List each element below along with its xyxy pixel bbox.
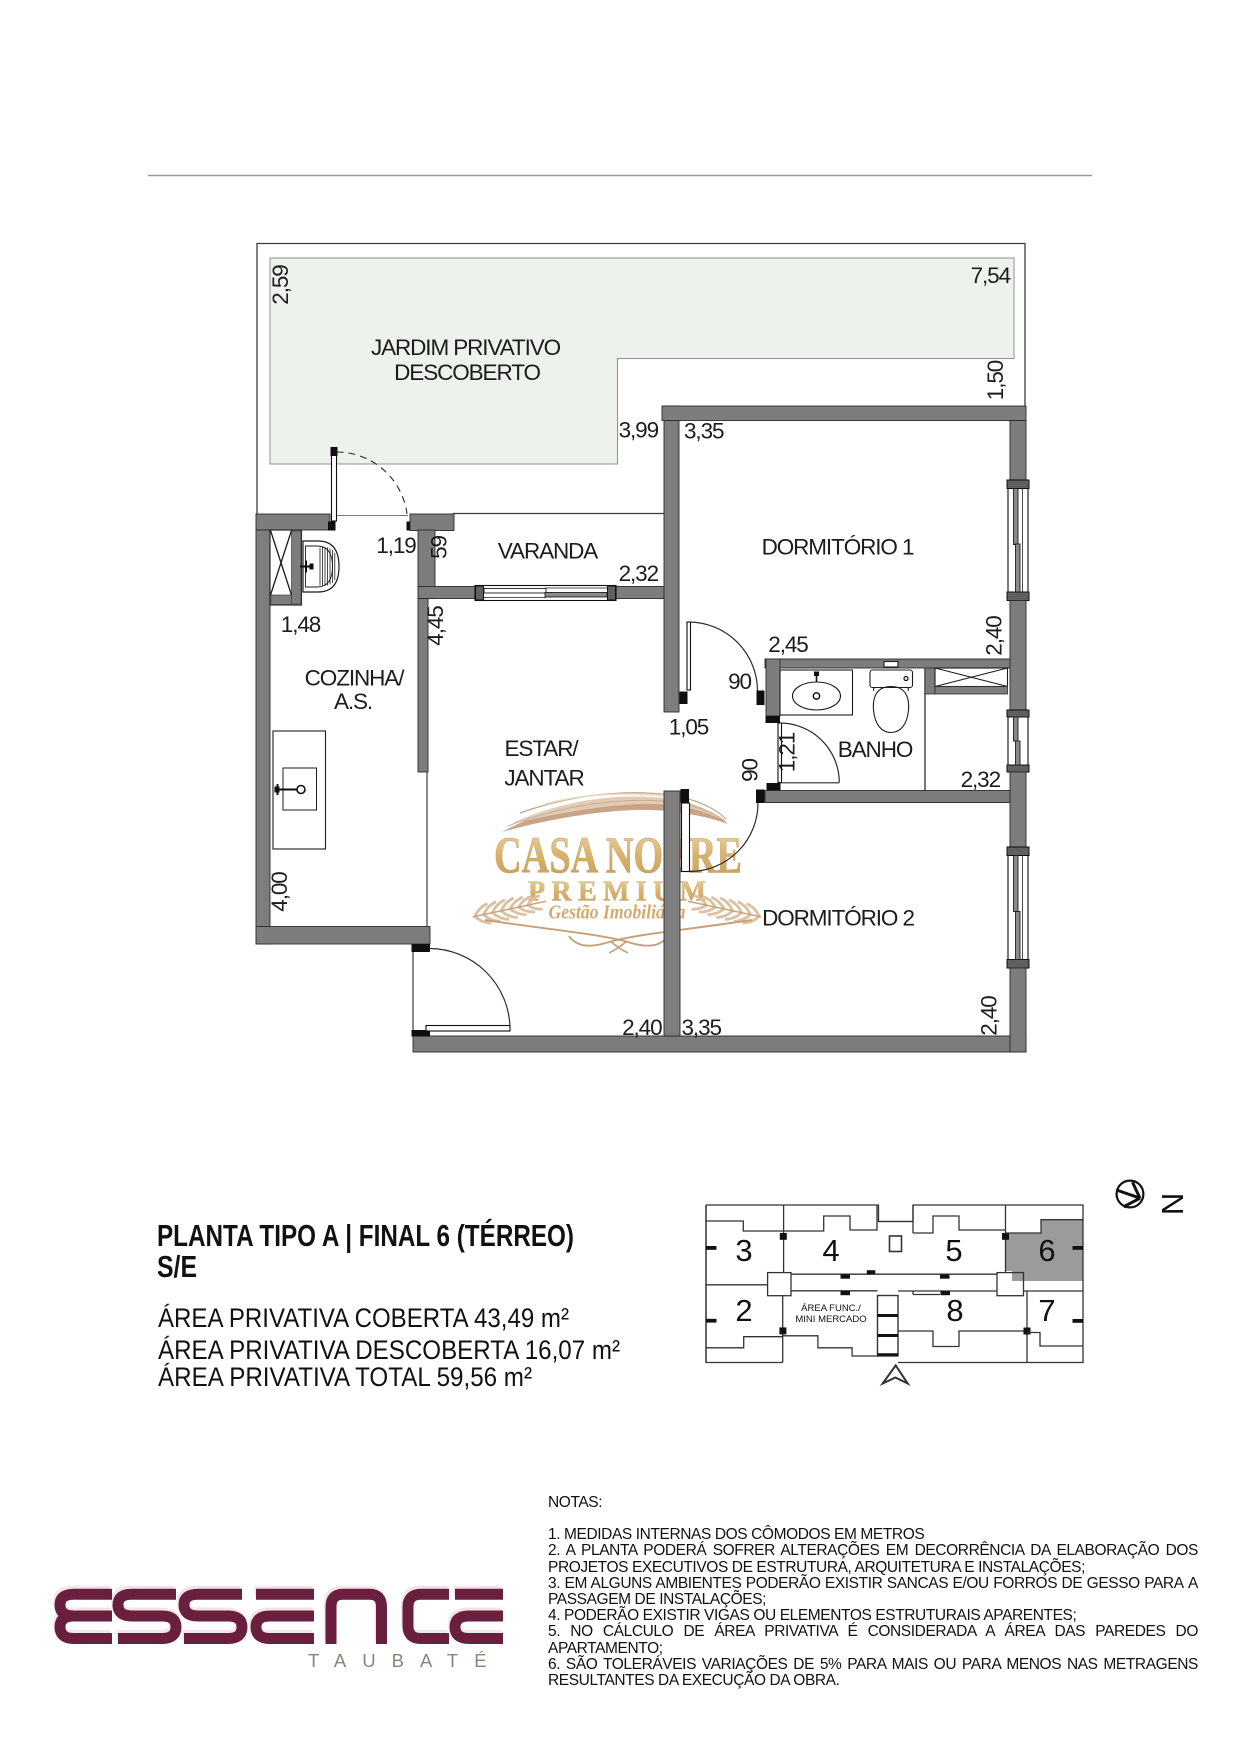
svg-text:3: 3 xyxy=(735,1233,752,1268)
svg-text:COZINHA/: COZINHA/ xyxy=(305,666,406,691)
svg-text:2,40: 2,40 xyxy=(977,996,1002,1036)
svg-text:ÁREA PRIVATIVA TOTAL 59,56 m²: ÁREA PRIVATIVA TOTAL 59,56 m² xyxy=(158,1362,532,1392)
svg-text:PLANTA TIPO A | FINAL 6 (TÉRRE: PLANTA TIPO A | FINAL 6 (TÉRREO) xyxy=(157,1218,574,1253)
svg-text:2,40: 2,40 xyxy=(982,616,1007,656)
svg-text:1,05: 1,05 xyxy=(669,715,709,740)
svg-text:3,35: 3,35 xyxy=(682,1015,722,1040)
svg-text:1,50: 1,50 xyxy=(983,360,1008,400)
svg-text:JANTAR: JANTAR xyxy=(504,766,584,791)
svg-text:N: N xyxy=(1155,1193,1190,1215)
svg-text:2: 2 xyxy=(735,1293,752,1328)
svg-text:90: 90 xyxy=(728,669,751,694)
svg-text:59: 59 xyxy=(427,536,452,559)
svg-text:7: 7 xyxy=(1038,1293,1055,1328)
svg-text:3,35: 3,35 xyxy=(684,419,724,444)
svg-text:ÁREA FUNC./: ÁREA FUNC./ xyxy=(801,1303,861,1314)
svg-text:2,59: 2,59 xyxy=(268,265,293,305)
svg-text:MINI MERCADO: MINI MERCADO xyxy=(795,1314,866,1325)
svg-text:S/E: S/E xyxy=(157,1250,197,1284)
svg-text:6: 6 xyxy=(1038,1233,1055,1268)
svg-text:ÁREA PRIVATIVA DESCOBERTA 16,0: ÁREA PRIVATIVA DESCOBERTA 16,07 m² xyxy=(158,1335,620,1365)
svg-text:TAUBATÉ: TAUBATÉ xyxy=(308,1650,503,1671)
svg-text:VARANDA: VARANDA xyxy=(498,539,598,564)
svg-text:4,00: 4,00 xyxy=(267,872,292,912)
svg-text:90: 90 xyxy=(738,759,763,782)
svg-text:DORMITÓRIO 1: DORMITÓRIO 1 xyxy=(762,535,914,560)
svg-text:1,48: 1,48 xyxy=(281,612,321,637)
svg-text:5: 5 xyxy=(945,1233,962,1268)
svg-text:2,40: 2,40 xyxy=(622,1015,662,1040)
svg-text:2,32: 2,32 xyxy=(619,561,659,586)
svg-text:4,45: 4,45 xyxy=(423,606,448,646)
svg-text:A.S.: A.S. xyxy=(334,689,372,714)
svg-text:ÁREA PRIVATIVA COBERTA 43,49: ÁREA PRIVATIVA COBERTA 43,49 m² xyxy=(158,1303,569,1333)
svg-text:8: 8 xyxy=(946,1293,963,1328)
svg-text:1,21: 1,21 xyxy=(775,732,800,772)
svg-text:ESTAR/: ESTAR/ xyxy=(505,736,580,761)
svg-text:7,54: 7,54 xyxy=(971,263,1011,288)
svg-text:DESCOBERTO: DESCOBERTO xyxy=(394,360,540,385)
svg-text:1,19: 1,19 xyxy=(376,533,416,558)
svg-text:DORMITÓRIO 2: DORMITÓRIO 2 xyxy=(762,906,914,931)
svg-text:3,99: 3,99 xyxy=(619,418,659,443)
svg-text:JARDIM PRIVATIVO: JARDIM PRIVATIVO xyxy=(371,335,561,360)
svg-text:2,45: 2,45 xyxy=(768,632,808,657)
svg-text:2,32: 2,32 xyxy=(961,767,1001,792)
svg-text:4: 4 xyxy=(822,1233,839,1268)
svg-text:BANHO: BANHO xyxy=(838,737,913,762)
